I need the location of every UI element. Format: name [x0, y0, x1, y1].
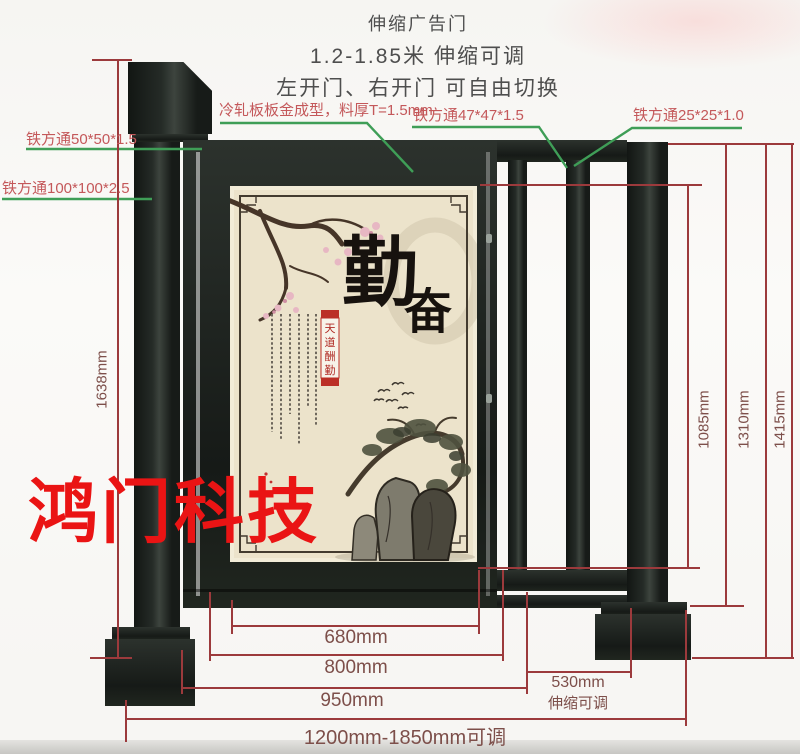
- leader-tube25: [574, 128, 742, 166]
- dim-text-950: 950mm: [292, 690, 412, 712]
- product-diagram: 伸缩广告门 1.2-1.85米 伸缩可调 左开门、右开门 可自由切换: [0, 0, 800, 754]
- dim-text-1415: 1415mm: [772, 390, 789, 450]
- dim-text-total-range: 1200mm-1850mm可调: [255, 721, 555, 750]
- dim-1310: [690, 144, 744, 606]
- dim-text-1638: 1638mm: [94, 350, 111, 410]
- dim-text-1085: 1085mm: [696, 390, 713, 450]
- dim-1085: [478, 185, 702, 568]
- dim-680: [232, 570, 479, 634]
- watermark-text: 鸿门科技: [28, 456, 320, 557]
- dim-text-680: 680mm: [296, 627, 416, 649]
- label-square-tube-100: 铁方通100*100*2.5: [2, 177, 130, 198]
- label-square-tube-47: 铁方通47*47*1.5: [413, 104, 524, 125]
- leader-tube47: [412, 127, 567, 168]
- dimension-lines: [90, 60, 794, 742]
- dim-text-530-note: 伸缩可调: [524, 692, 632, 713]
- dim-text-530: 530mm: [528, 674, 628, 692]
- label-square-tube-25: 铁方通25*25*1.0: [633, 104, 744, 125]
- label-panel-material: 冷轧板板金成型，料厚T=1.5mm: [219, 99, 433, 120]
- dim-530: [527, 608, 631, 678]
- leader-panel: [220, 123, 413, 172]
- title-line-1: 伸缩广告门: [238, 10, 598, 36]
- dim-text-800: 800mm: [296, 657, 416, 679]
- title-line-3: 左开门、右开门 可自由切换: [238, 72, 598, 102]
- title-line-2: 1.2-1.85米 伸缩可调: [238, 40, 598, 70]
- label-square-tube-50: 铁方通50*50*1.5: [26, 128, 137, 149]
- dim-text-1310: 1310mm: [736, 390, 753, 450]
